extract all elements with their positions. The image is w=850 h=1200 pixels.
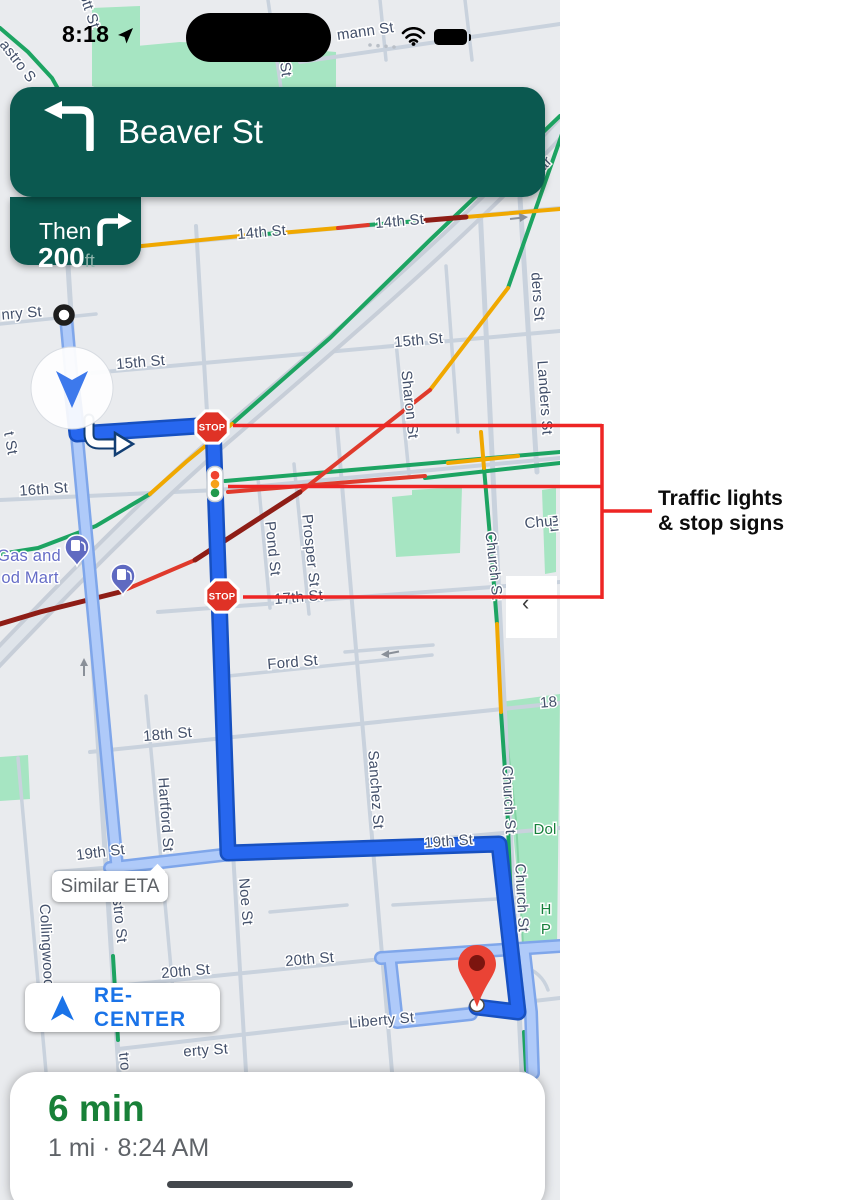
then-label: Then [39,218,91,245]
poi-label: Gas and [0,547,61,565]
similar-eta-chip[interactable]: Similar ETA [52,871,168,902]
street-label: 18 [539,693,558,711]
street-label: ders St [527,272,547,323]
collapse-panel-button[interactable]: ‹ [506,576,557,638]
street-label: tro [115,1052,134,1072]
phone-screen: .lbl{font-family:"Liberation Sans",sans-… [0,0,560,1200]
street-label: Church St [498,765,519,835]
street-label: 19th St [424,831,475,851]
street-label: 16th St [19,479,70,499]
chevron-left-icon: ‹ [522,590,529,616]
next-street-name: Beaver St [118,113,263,151]
location-puck [31,347,113,429]
svg-text:STOP: STOP [209,592,236,603]
stop-sign-icon: STOP [196,411,228,443]
distance-unit: ft [85,251,95,271]
park-label: Dol [533,821,556,838]
distance-value: 200 [38,242,85,273]
recenter-button[interactable]: RE-CENTER [25,983,220,1032]
distance: 200ft [38,242,95,274]
traffic-light-icon [207,467,223,502]
stop-sign-icon: STOP [206,580,238,612]
screenshot-canvas: .lbl{font-family:"Liberation Sans",sans-… [0,0,850,1200]
annotation-line1: Traffic lights [658,486,784,511]
turn-right-icon [92,210,134,246]
street-label: Chu [524,513,553,532]
street-label: Church St [511,863,532,933]
recenter-label: RE-CENTER [94,984,220,1032]
annotation-label: Traffic lights & stop signs [658,486,784,536]
waypoint-dot [56,307,72,323]
similar-eta-label: Similar ETA [61,876,160,898]
street-label: nry St [1,303,43,324]
street-label: erty St [183,1040,229,1060]
street-label: St [276,61,295,78]
annotation-line2: & stop signs [658,511,784,536]
park-label: P [541,921,551,938]
trip-detail: 1 mi · 8:24 AM [48,1134,209,1163]
home-indicator[interactable] [167,1181,353,1188]
navigation-banner[interactable]: 200ft Beaver St [10,87,545,197]
park-label: H [540,901,551,918]
poi-label: od Mart [1,569,59,587]
turn-left-icon [38,101,98,151]
svg-text:STOP: STOP [199,423,226,434]
recenter-arrow-icon [49,994,76,1022]
trip-eta: 6 min [48,1088,145,1130]
